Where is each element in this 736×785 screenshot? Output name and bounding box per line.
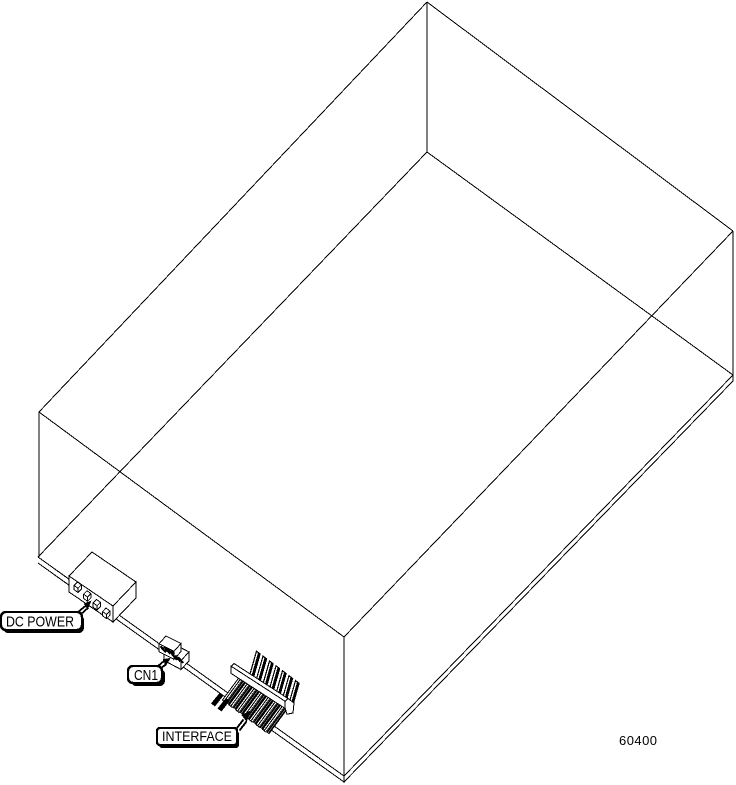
svg-text:DC POWER: DC POWER <box>6 614 74 631</box>
svg-text:INTERFACE: INTERFACE <box>162 728 232 744</box>
svg-text:CN1: CN1 <box>134 667 158 684</box>
svg-text:60400: 60400 <box>619 733 657 748</box>
